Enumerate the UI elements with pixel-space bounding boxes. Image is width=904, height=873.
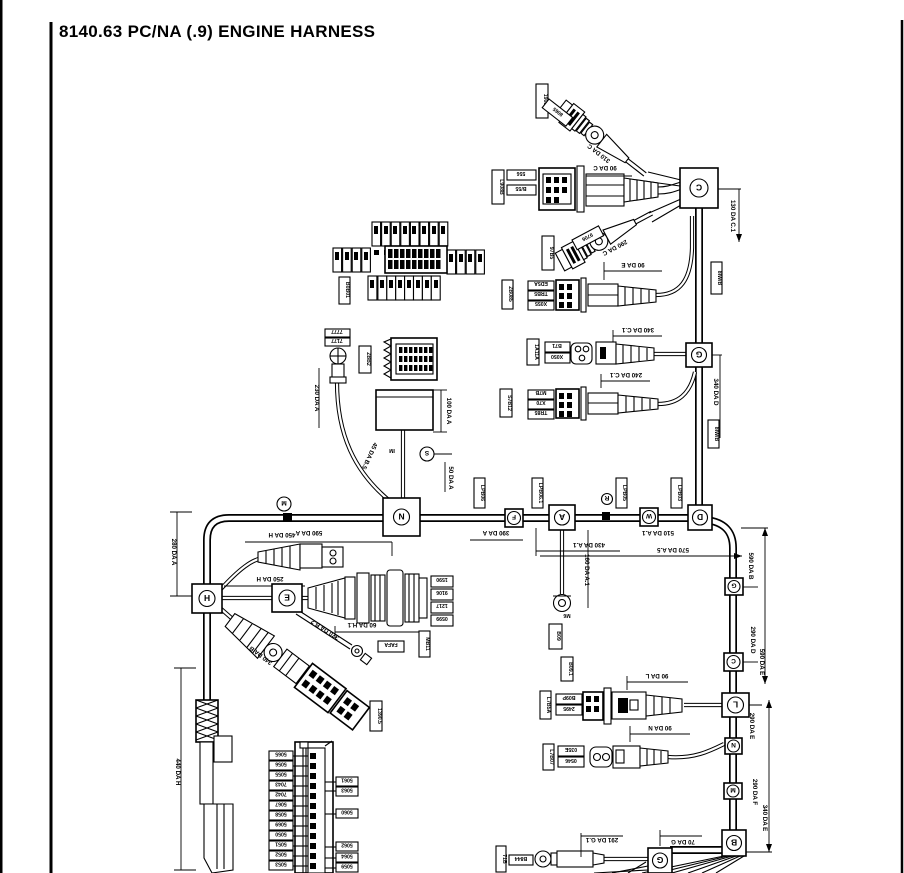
dim-340-da-e: 340 DA E bbox=[761, 805, 768, 832]
dim-370-da-b2: 370 DA B.2 bbox=[309, 617, 340, 641]
svg-text:035E: 035E bbox=[564, 746, 577, 752]
svg-text:5059: 5059 bbox=[341, 863, 353, 869]
svg-text:7177: 7177 bbox=[331, 337, 343, 343]
junction-box-a: A bbox=[549, 505, 575, 530]
sensor-device: 7777 7177 230 DA A bbox=[313, 328, 350, 428]
svg-text:B/55: B/55 bbox=[515, 185, 526, 191]
dim-60-da-h1: 60 DA H.1 bbox=[347, 621, 376, 628]
svg-text:X050: X050 bbox=[551, 353, 563, 359]
svg-text:0599: 0599 bbox=[436, 615, 448, 621]
dim-250-da-h: 250 DA H bbox=[256, 575, 283, 582]
dim-570-da-a5: 570 DA A.5 bbox=[657, 546, 689, 553]
svg-text:B71: B71 bbox=[552, 342, 562, 348]
marker-im: IM bbox=[389, 447, 395, 453]
dim-440-da-h: 440 DA H bbox=[174, 759, 181, 786]
svg-text:5060: 5060 bbox=[341, 809, 353, 815]
svg-text:5058: 5058 bbox=[275, 811, 287, 817]
dim-290-da-d: 290 DA D bbox=[749, 627, 756, 654]
junction-box-g3: G bbox=[648, 848, 672, 873]
dim-510-da-a1: 510 DA A.1 bbox=[642, 529, 674, 536]
ecu-connector: ZBB2 100 DA A IM bbox=[359, 338, 452, 453]
junction-box-n-center: N bbox=[383, 498, 420, 536]
junction-box-d: D bbox=[688, 505, 712, 530]
svg-text:5050: 5050 bbox=[275, 831, 287, 837]
svg-text:5061: 5061 bbox=[341, 777, 353, 783]
svg-text:5065: 5065 bbox=[275, 751, 287, 757]
connector-assembly-1: ZB085 ED5A TRB5 X055 90 DA E bbox=[502, 261, 662, 312]
svg-text:1A11A: 1A11A bbox=[533, 344, 539, 360]
dim-450-da-h: 450 DA H bbox=[268, 531, 295, 538]
svg-text:X70: X70 bbox=[536, 399, 545, 405]
svg-text:8IW/B: 8IW/B bbox=[716, 271, 722, 286]
svg-text:MB11: MB11 bbox=[424, 637, 430, 651]
dim-590-da-a: 590 DA A bbox=[295, 529, 322, 536]
svg-text:M: M bbox=[281, 499, 286, 506]
svg-text:N: N bbox=[398, 512, 404, 522]
junction-box-l: L bbox=[722, 693, 749, 717]
connector-assembly-2: 1A11A B71 X050 340 DA C.1 bbox=[527, 326, 662, 365]
junction-box-c2: C bbox=[724, 653, 743, 671]
svg-text:LPB06: LPB06 bbox=[479, 485, 485, 501]
dim-291-da-g1: 291 DA G.1 bbox=[585, 836, 618, 843]
under-trunk-dims: 590 DA A 390 DA A 430 DA A.1 510 DA A.1 … bbox=[295, 528, 742, 559]
svg-text:TRB5: TRB5 bbox=[534, 290, 548, 296]
junction-box-c: C bbox=[680, 168, 718, 208]
svg-text:N: N bbox=[731, 741, 736, 748]
svg-text:1217: 1217 bbox=[436, 602, 448, 608]
engine-harness-diagram: 8140.63 PC/NA (.9) ENGINE HARNESS bbox=[0, 0, 904, 873]
svg-text:L: L bbox=[733, 700, 738, 710]
svg-text:5053: 5053 bbox=[275, 861, 287, 867]
connector-pinout-table: B0B01 B0B05 bbox=[333, 222, 513, 308]
dim-240-da-c1: 240 DA C.1 bbox=[609, 371, 642, 378]
svg-text:H: H bbox=[204, 593, 210, 603]
dim-70-da-g: 70 DA G bbox=[671, 838, 695, 845]
dim-90-da-e: 90 DA E bbox=[621, 261, 644, 268]
svg-text:C: C bbox=[696, 183, 702, 193]
svg-text:R: R bbox=[604, 494, 609, 501]
junction-box-b: B bbox=[722, 830, 746, 856]
svg-text:5064: 5064 bbox=[341, 853, 353, 859]
svg-text:2495: 2495 bbox=[563, 705, 575, 711]
connector-assembly-top: L908B 556 B/55 90 DA C bbox=[492, 164, 682, 212]
svg-text:556: 556 bbox=[517, 170, 526, 176]
junction-box-w: W bbox=[640, 508, 658, 526]
svg-text:C: C bbox=[731, 657, 736, 664]
svg-text:G: G bbox=[731, 582, 736, 589]
injector-label-vertical: 19080 bbox=[536, 84, 548, 118]
trunk-marker-square bbox=[602, 512, 610, 520]
svg-text:9106: 9106 bbox=[436, 589, 448, 595]
svg-text:L908B: L908B bbox=[498, 179, 504, 195]
svg-text:B844: B844 bbox=[515, 855, 528, 861]
n2-branch-connector: 035E 0546 L7B07 90 DA N bbox=[543, 724, 690, 770]
svg-text:5056: 5056 bbox=[275, 761, 287, 767]
junction-box-f: F bbox=[505, 509, 523, 527]
dim-100-da-a: 100 DA A bbox=[445, 398, 452, 425]
dim-45-da-b5: 45 DA B.5 bbox=[360, 441, 379, 470]
left-dim-280: 280 DA A bbox=[170, 512, 192, 596]
dim-340-da-d: 340 DA D bbox=[712, 379, 719, 406]
svg-text:S: S bbox=[424, 449, 429, 456]
junction-box-h: H bbox=[192, 584, 222, 613]
svg-text:0546: 0546 bbox=[565, 757, 577, 763]
dim-280-da-a: 280 DA A bbox=[170, 539, 177, 566]
svg-text:5069: 5069 bbox=[275, 821, 287, 827]
dim-590-da-e: 590 DA E bbox=[758, 649, 765, 676]
svg-text:LPB06.1: LPB06.1 bbox=[537, 483, 543, 504]
dim-90-da-n: 90 DA N bbox=[648, 724, 672, 731]
marker-m6: M6 bbox=[563, 612, 570, 618]
eyelet-stalk: 160 DA A.1 M6 B09 B09.1 bbox=[549, 530, 590, 681]
trunk-code-labels: LPB06 LPB06.1 LPB05 LPB03 bbox=[474, 478, 682, 508]
svg-text:5062: 5062 bbox=[341, 842, 353, 848]
harness-sleeve-label: 1390.5 bbox=[370, 701, 382, 731]
page-left-edge bbox=[0, 0, 3, 873]
manual-page: 8140.63 PC/NA (.9) ENGINE HARNESS bbox=[0, 0, 904, 873]
dim-90-da-l: 90 DA L bbox=[645, 672, 668, 679]
dim-290-da-f: 290 DA F bbox=[751, 779, 758, 805]
svg-text:5055: 5055 bbox=[275, 771, 287, 777]
svg-text:W: W bbox=[645, 512, 652, 519]
module-body bbox=[376, 390, 433, 430]
svg-text:LPB03: LPB03 bbox=[676, 485, 682, 501]
svg-text:M: M bbox=[730, 786, 735, 793]
svg-text:7043: 7043 bbox=[275, 781, 287, 787]
dim-130-da-c1: 130 DA C.1 bbox=[729, 200, 736, 233]
junction-box-m2: M bbox=[724, 783, 742, 799]
svg-text:5052: 5052 bbox=[275, 851, 287, 857]
dim-160-da-a1: 160 DA A.1 bbox=[583, 554, 590, 586]
svg-text:M7B: M7B bbox=[535, 389, 546, 395]
svg-text:D: D bbox=[697, 512, 703, 522]
svg-text:G: G bbox=[656, 855, 663, 865]
h-down-branch-connector bbox=[221, 608, 370, 731]
svg-text:8IW/B: 8IW/B bbox=[713, 427, 719, 442]
svg-text:B: B bbox=[731, 838, 737, 848]
terminal-block: 5065 5056 5055 7043 7042 5067 5058 5069 … bbox=[269, 741, 358, 873]
svg-text:71B: 71B bbox=[501, 854, 507, 864]
svg-text:FAFA: FAFA bbox=[384, 641, 398, 647]
svg-text:1390.5: 1390.5 bbox=[376, 708, 382, 724]
svg-text:5051: 5051 bbox=[275, 841, 287, 847]
clip-m: M bbox=[277, 497, 291, 511]
svg-text:B0B01: B0B01 bbox=[344, 282, 350, 298]
svg-text:LPB05: LPB05 bbox=[621, 485, 627, 501]
dim-50-da-a: 50 DA A bbox=[447, 466, 454, 490]
svg-text:L7B5A: L7B5A bbox=[545, 697, 551, 714]
svg-text:G: G bbox=[695, 350, 702, 360]
connector-assembly-3: S7B12 M7B X70 TR85 240 DA C.1 bbox=[500, 371, 658, 420]
svg-text:TR85: TR85 bbox=[535, 409, 548, 415]
svg-text:X055: X055 bbox=[535, 300, 547, 306]
dim-90-da-c: 90 DA C bbox=[593, 164, 617, 171]
svg-text:B09P: B09P bbox=[562, 694, 576, 700]
junction-box-g1: G bbox=[725, 578, 743, 595]
dim-230-da-a: 230 DA A bbox=[313, 385, 320, 412]
dim-430-da-a1: 430 DA A.1 bbox=[573, 541, 605, 548]
dim-590-da-b: 590 DA B bbox=[747, 553, 754, 580]
junction-box-n2: N bbox=[725, 738, 742, 754]
page-title: 8140.63 PC/NA (.9) ENGINE HARNESS bbox=[59, 22, 375, 41]
trunk-marker-square bbox=[283, 513, 292, 521]
svg-text:7042: 7042 bbox=[275, 791, 287, 797]
junction-box-g-top: G bbox=[686, 343, 712, 367]
svg-text:7777: 7777 bbox=[331, 328, 343, 334]
svg-text:ZB085: ZB085 bbox=[507, 286, 513, 302]
svg-text:5063: 5063 bbox=[341, 787, 353, 793]
clip-r: R bbox=[602, 494, 613, 505]
svg-text:5067: 5067 bbox=[275, 801, 287, 807]
junction-box-e: E bbox=[272, 584, 302, 612]
svg-text:ZBB2: ZBB2 bbox=[365, 352, 371, 366]
svg-text:E: E bbox=[284, 593, 290, 603]
svg-text:B09.1: B09.1 bbox=[567, 662, 573, 676]
svg-text:F: F bbox=[512, 513, 516, 520]
svg-text:L7B07: L7B07 bbox=[548, 749, 554, 765]
svg-text:B09: B09 bbox=[555, 631, 561, 641]
svg-text:A: A bbox=[559, 512, 565, 522]
injector-mid-label-vertical: 97B5 bbox=[542, 236, 554, 270]
dim-390-da-a: 390 DA A bbox=[482, 529, 509, 536]
svg-text:S7B12: S7B12 bbox=[506, 395, 512, 411]
svg-text:1590: 1590 bbox=[436, 576, 448, 582]
svg-text:97B5: 97B5 bbox=[548, 247, 554, 260]
dim-340-da-c1: 340 DA C.1 bbox=[621, 326, 654, 333]
svg-text:ED5A: ED5A bbox=[534, 280, 548, 286]
